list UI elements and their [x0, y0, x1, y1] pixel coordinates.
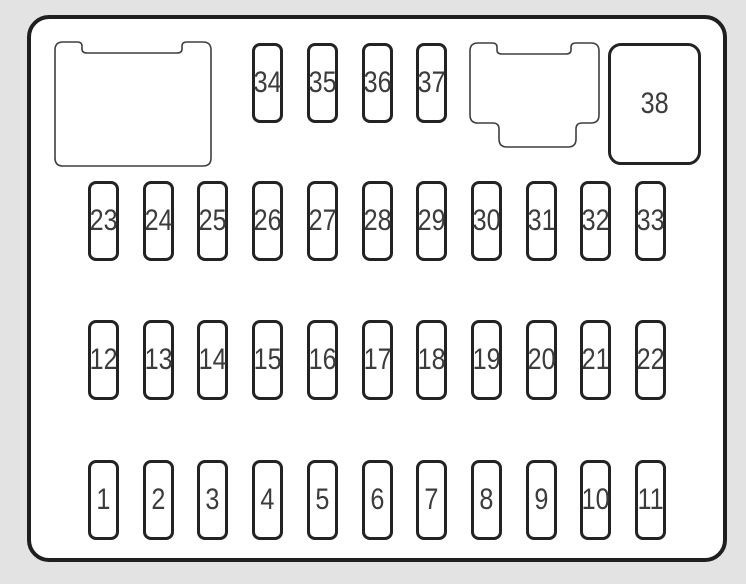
fuse-number: 32: [581, 206, 609, 236]
fuse-29: 29: [416, 181, 447, 261]
fuse-22: 22: [635, 320, 666, 400]
fuse-number: 8: [479, 485, 493, 515]
fuse-26: 26: [252, 181, 283, 261]
fuse-number: 30: [472, 206, 500, 236]
fuse-row-bottom: 1234567891011: [0, 460, 746, 540]
fuse-24: 24: [143, 181, 174, 261]
fuse-number: 9: [534, 485, 548, 515]
fuse-number: 26: [253, 206, 281, 236]
fuse-number: 5: [315, 485, 329, 515]
fuse-number: 14: [198, 345, 226, 375]
fuse-number: 12: [89, 345, 117, 375]
fuse-35: 35: [307, 43, 338, 123]
fuse-number: 25: [198, 206, 226, 236]
fuse-row-top: 34353637: [0, 43, 746, 123]
fuse-number: 18: [417, 345, 445, 375]
fuse-19: 19: [471, 320, 502, 400]
fuse-number: 7: [424, 485, 438, 515]
fuse-10: 10: [580, 460, 611, 540]
fuse-18: 18: [416, 320, 447, 400]
fuse-number: 22: [636, 345, 664, 375]
fuse-7: 7: [416, 460, 447, 540]
fuse-number: 16: [308, 345, 336, 375]
fuse-row-second: 2324252627282930313233: [0, 181, 746, 261]
fuse-number: 31: [527, 206, 555, 236]
fuse-number: 11: [637, 485, 663, 515]
fuse-number: 1: [96, 485, 110, 515]
fuse-20: 20: [526, 320, 557, 400]
fuse-number: 35: [308, 68, 336, 98]
fuse-30: 30: [471, 181, 502, 261]
fuse-36: 36: [362, 43, 393, 123]
fuse-14: 14: [197, 320, 228, 400]
fuse-33: 33: [635, 181, 666, 261]
fuse-number: 10: [581, 485, 609, 515]
fuse-number: 28: [363, 206, 391, 236]
fuse-2: 2: [143, 460, 174, 540]
fuse-15: 15: [252, 320, 283, 400]
fuse-number: 4: [260, 485, 274, 515]
fuse-4: 4: [252, 460, 283, 540]
fuse-8: 8: [471, 460, 502, 540]
fuse-number: 3: [205, 485, 219, 515]
fuse-number: 15: [253, 345, 281, 375]
fuse-9: 9: [526, 460, 557, 540]
fuse-number: 24: [144, 206, 172, 236]
fuse-number: 23: [89, 206, 117, 236]
fuse-31: 31: [526, 181, 557, 261]
fuse-12: 12: [88, 320, 119, 400]
fuse-number: 36: [363, 68, 391, 98]
fuse-number: 19: [472, 345, 500, 375]
fuse-28: 28: [362, 181, 393, 261]
fuse-number: 2: [151, 485, 165, 515]
fuse-row-third: 1213141516171819202122: [0, 320, 746, 400]
fuse-number: 21: [581, 345, 609, 375]
fuse-number: 20: [527, 345, 555, 375]
fuse-21: 21: [580, 320, 611, 400]
fuse-3: 3: [197, 460, 228, 540]
fuse-number: 17: [363, 345, 391, 375]
fuse-number: 6: [370, 485, 384, 515]
fuse-16: 16: [307, 320, 338, 400]
fuse-number: 33: [636, 206, 664, 236]
fuse-5: 5: [307, 460, 338, 540]
fuse-box-diagram: 38 34353637 2324252627282930313233 12131…: [0, 0, 746, 584]
fuse-number: 13: [144, 345, 172, 375]
fuse-25: 25: [197, 181, 228, 261]
fuse-17: 17: [362, 320, 393, 400]
fuse-number: 34: [253, 68, 281, 98]
fuse-37: 37: [416, 43, 447, 123]
fuse-27: 27: [307, 181, 338, 261]
fuse-11: 11: [635, 460, 666, 540]
fuse-6: 6: [362, 460, 393, 540]
fuse-1: 1: [88, 460, 119, 540]
fuse-number: 29: [417, 206, 445, 236]
fuse-32: 32: [580, 181, 611, 261]
fuse-23: 23: [88, 181, 119, 261]
fuse-13: 13: [143, 320, 174, 400]
fuse-number: 27: [308, 206, 336, 236]
fuse-34: 34: [252, 43, 283, 123]
fuse-number: 37: [417, 68, 445, 98]
